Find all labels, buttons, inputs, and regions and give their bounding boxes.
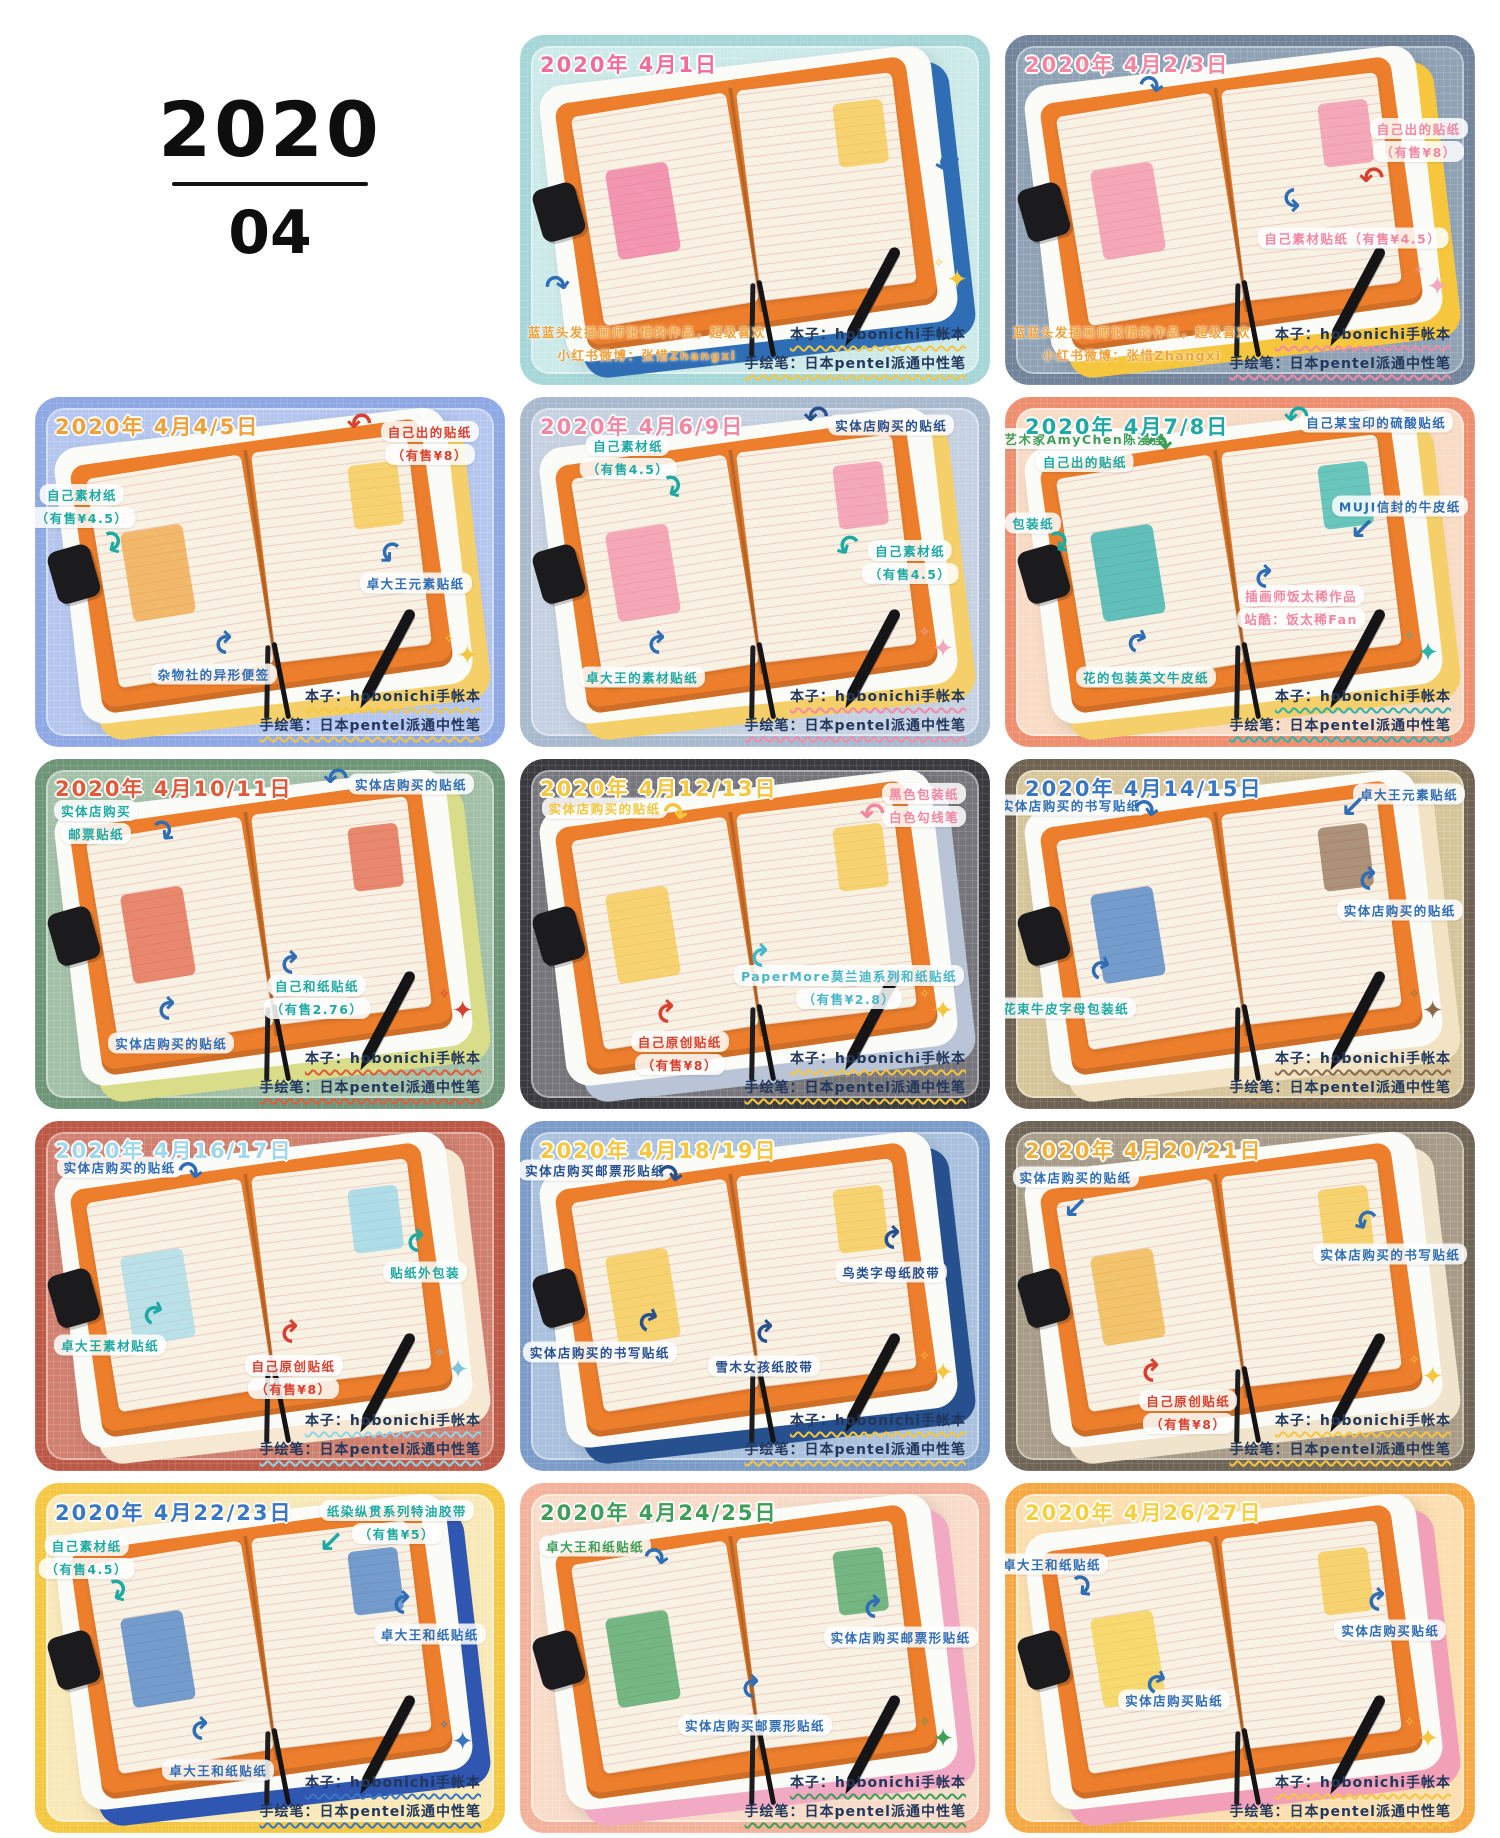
annotation-label: 花的包装英文牛皮纸 bbox=[1076, 665, 1216, 690]
annotation-label: 自己素材纸（有售¥4.5） bbox=[35, 482, 135, 530]
annotation-label: 卓大王素材贴纸 bbox=[54, 1333, 166, 1358]
card-date: 2020年 4月6/9日 bbox=[540, 411, 744, 441]
curly-arrow-icon: ↷ bbox=[749, 942, 779, 967]
sparkle-icon: ✦ bbox=[1417, 638, 1439, 668]
annotation-line: 贴纸外包装 bbox=[383, 1261, 467, 1282]
annotation-line: 卓大王的素材贴纸 bbox=[579, 667, 705, 688]
pen-credit: 手绘笔：日本pentel派通中性笔 bbox=[1230, 715, 1451, 735]
journal-card-12: 纸染纵贯系列特油胶带（有售¥5）↙自己素材纸（有售4.5）↷卓大王和纸贴纸↷卓大… bbox=[35, 1483, 505, 1833]
annotation-label: 卓大王和纸贴纸 bbox=[539, 1534, 651, 1559]
annotation-label: 卓大王元素贴纸 bbox=[1353, 782, 1465, 807]
annotation-line: （有售¥2.8） bbox=[796, 988, 903, 1009]
sparkle-icon: ✦ bbox=[946, 265, 968, 295]
card-footer: 本子：hobonichi手帐本 手绘笔：日本pentel派通中性笔 bbox=[1230, 315, 1451, 373]
card-date: 2020年 4月24/25日 bbox=[540, 1497, 778, 1527]
annotation-label: 实体店购买的贴纸 bbox=[1337, 897, 1463, 922]
sparkle-icon: ✦ bbox=[456, 641, 478, 671]
curly-arrow-icon: ↶ bbox=[1284, 403, 1309, 433]
annotation-line: 实体店购买的贴纸 bbox=[108, 1032, 234, 1053]
pen-credit: 手绘笔：日本pentel派通中性笔 bbox=[745, 353, 966, 373]
annotation-line: （有售¥8） bbox=[385, 444, 475, 465]
curly-arrow-icon: ↷ bbox=[660, 798, 690, 832]
curly-arrow-icon: ↷ bbox=[1253, 563, 1283, 588]
notebook-credit: 本子：hobonichi手帐本 bbox=[790, 1410, 966, 1430]
card-footer: 本子：hobonichi手帐本 手绘笔：日本pentel派通中性笔 bbox=[260, 677, 481, 735]
page: { "title": { "year": "2020", "month": "0… bbox=[0, 0, 1500, 1838]
annotation-label: 贴纸外包装 bbox=[383, 1259, 467, 1284]
annotation-line: 卓大王元素贴纸 bbox=[1353, 784, 1465, 805]
annotation-line: 雪木女孩纸胶带 bbox=[708, 1356, 820, 1377]
annotation-label: 卓大王元素贴纸 bbox=[360, 570, 472, 595]
pen-credit: 手绘笔：日本pentel派通中性笔 bbox=[1230, 353, 1451, 373]
annotation-line: 自己素材贴纸（有售¥4.5） bbox=[1257, 228, 1448, 249]
annotation-label: 自己某宝印的硫酸贴纸 bbox=[1299, 409, 1453, 434]
annotation-label: 实体店购买邮票形贴纸 bbox=[678, 1712, 832, 1737]
sparkle-icon: ✦ bbox=[932, 1724, 954, 1754]
annotation-line: （有售2.76） bbox=[264, 998, 371, 1019]
annotation-label: 自己出的贴纸（有售¥8） bbox=[381, 419, 479, 467]
notebook-credit: 本子：hobonichi手帐本 bbox=[790, 1772, 966, 1792]
journal-card-11: 实体店购买的贴纸↙实体店购买的书写贴纸↶自己原创贴纸（有售¥8）↷ 2020年 … bbox=[1005, 1121, 1475, 1471]
curly-arrow-icon: ↷ bbox=[543, 270, 573, 304]
sparkle-icon: ✦ bbox=[1426, 272, 1448, 302]
card-date: 2020年 4月20/21日 bbox=[1025, 1135, 1263, 1165]
sparkle-icon: ✦ bbox=[1422, 996, 1444, 1026]
curly-arrow-icon: ↶ bbox=[932, 147, 964, 182]
card-footer: 本子：hobonichi手帐本 手绘笔：日本pentel派通中性笔 bbox=[260, 1763, 481, 1821]
photo-caption: 蓝蓝头发插画师张惜的作品，超级喜欢小红书微博：张惜Zhangxi bbox=[521, 319, 773, 367]
curly-arrow-icon: ↶ bbox=[860, 800, 885, 830]
pen-credit: 手绘笔：日本pentel派通中性笔 bbox=[745, 1077, 966, 1097]
journal-card-5: 自己某宝印的硫酸贴纸↶艺术家AmyChen陈漫狸自己出的贴纸↷包装纸↷MUJI信… bbox=[1005, 397, 1475, 747]
card-footer: 本子：hobonichi手帐本 手绘笔：日本pentel派通中性笔 bbox=[745, 1763, 966, 1821]
annotation-line: （有售¥8） bbox=[635, 1054, 725, 1075]
annotation-line: 自己素材纸 bbox=[868, 540, 952, 561]
sparkle-icon: ✦ bbox=[452, 1727, 474, 1757]
annotation-label: 实体店购买的贴纸 bbox=[1012, 1165, 1138, 1190]
curly-arrow-icon: ↷ bbox=[1357, 865, 1387, 890]
annotation-line: 纸染纵贯系列特油胶带 bbox=[320, 1500, 474, 1521]
journal-card-2: 自己出的贴纸（有售¥8）↶自己素材贴纸（有售¥4.5）蓝蓝头发插画师张惜的作品，… bbox=[1005, 35, 1475, 385]
card-footer: 本子：hobonichi手帐本 手绘笔：日本pentel派通中性笔 bbox=[745, 677, 966, 735]
annotation-line: 自己出的贴纸 bbox=[1370, 118, 1468, 139]
pen-credit: 手绘笔：日本pentel派通中性笔 bbox=[1230, 1439, 1451, 1459]
curly-arrow-icon: ↶ bbox=[347, 410, 372, 440]
card-date: 2020年 4月7/8日 bbox=[1025, 411, 1229, 441]
annotation-label: 实体店购买的贴纸 bbox=[828, 413, 954, 438]
notebook-credit: 本子：hobonichi手帐本 bbox=[305, 1410, 481, 1430]
curly-arrow-icon: ↷ bbox=[646, 629, 676, 654]
journal-card-7: 实体店购买的贴纸↷黑色包装纸白色勾线笔↶PaperMore莫兰迪系列和纸贴纸（有… bbox=[520, 759, 990, 1109]
notebook-credit: 本子：hobonichi手帐本 bbox=[305, 686, 481, 706]
annotation-label: 杂物社的异形便签 bbox=[151, 661, 277, 686]
annotation-line: 实体店购买邮票形贴纸 bbox=[678, 1714, 832, 1735]
curly-arrow-icon: ↷ bbox=[740, 1673, 770, 1698]
card-date: 2020年 4月22/23日 bbox=[55, 1497, 293, 1527]
curly-arrow-icon: ↙ bbox=[1350, 515, 1375, 545]
curly-arrow-icon: ↷ bbox=[139, 1297, 176, 1331]
annotation-line: 蓝蓝头发插画师张惜的作品，超级喜欢 bbox=[521, 321, 773, 342]
curly-arrow-icon: ↷ bbox=[279, 949, 309, 974]
annotation-line: （有售4.5） bbox=[862, 563, 959, 584]
annotation-label: 卓大王和纸贴纸 bbox=[374, 1621, 486, 1646]
card-date: 2020年 4月1日 bbox=[540, 49, 718, 79]
annotation-line: 小红书微博：张惜Zhangxi bbox=[1035, 344, 1228, 365]
annotation-line: 自己出的贴纸 bbox=[1036, 451, 1134, 472]
card-date: 2020年 4月14/15日 bbox=[1025, 773, 1263, 803]
curly-arrow-icon: ↙ bbox=[1063, 1194, 1088, 1224]
notebook-credit: 本子：hobonichi手帐本 bbox=[1275, 1410, 1451, 1430]
annotation-line: 卓大王素材贴纸 bbox=[54, 1335, 166, 1356]
card-footer: 本子：hobonichi手帐本 手绘笔：日本pentel派通中性笔 bbox=[260, 1401, 481, 1459]
annotation-label: 雪木女孩纸胶带 bbox=[708, 1354, 820, 1379]
annotation-line: 卓大王和纸贴纸 bbox=[374, 1623, 486, 1644]
curly-arrow-icon: ↷ bbox=[633, 1304, 670, 1338]
annotation-line: 花束牛皮字母包装纸 bbox=[1005, 997, 1136, 1018]
annotation-label: 黑色包装纸白色勾线笔 bbox=[882, 781, 966, 829]
notebook-credit: 本子：hobonichi手帐本 bbox=[1275, 1048, 1451, 1068]
annotation-line: 自己某宝印的硫酸贴纸 bbox=[1299, 411, 1453, 432]
annotation-line: 实体店购买的书写贴纸 bbox=[1313, 1244, 1467, 1265]
annotation-line: 自己出的贴纸 bbox=[381, 421, 479, 442]
pen-credit: 手绘笔：日本pentel派通中性笔 bbox=[745, 1439, 966, 1459]
card-footer: 本子：hobonichi手帐本 手绘笔：日本pentel派通中性笔 bbox=[1230, 677, 1451, 735]
annotation-label: 自己原创贴纸（有售¥8） bbox=[631, 1029, 729, 1077]
annotation-label: 插画师饭太稀作品站酷：饭太稀Fan bbox=[1237, 583, 1365, 631]
annotation-line: 邮票贴纸 bbox=[61, 823, 131, 844]
pen-credit: 手绘笔：日本pentel派通中性笔 bbox=[260, 715, 481, 735]
annotation-label: 卓大王的素材贴纸 bbox=[579, 665, 705, 690]
curly-arrow-icon: ↷ bbox=[881, 1224, 911, 1249]
annotation-line: 实体店购买的贴纸 bbox=[1012, 1167, 1138, 1188]
annotation-line: 卓大王元素贴纸 bbox=[360, 572, 472, 593]
sparkle-icon: ✦ bbox=[1417, 1724, 1439, 1754]
notebook-credit: 本子：hobonichi手帐本 bbox=[790, 1048, 966, 1068]
pen-credit: 手绘笔：日本pentel派通中性笔 bbox=[1230, 1077, 1451, 1097]
card-date: 2020年 4月10/11日 bbox=[55, 773, 293, 803]
annotation-label: 自己素材纸（有售4.5） bbox=[862, 538, 959, 586]
curly-arrow-icon: ↷ bbox=[391, 1589, 421, 1614]
annotation-label: 实体店购买的书写贴纸 bbox=[523, 1340, 677, 1365]
notebook-credit: 本子：hobonichi手帐本 bbox=[1275, 1772, 1451, 1792]
annotation-line: （有售¥8） bbox=[1143, 1413, 1233, 1434]
annotation-line: 实体店购买的贴纸 bbox=[1337, 899, 1463, 920]
card-date: 2020年 4月12/13日 bbox=[540, 773, 778, 803]
annotation-line: 站酷：饭太稀Fan bbox=[1237, 608, 1365, 629]
annotation-line: （有售4.5） bbox=[580, 458, 677, 479]
journal-card-9: 实体店购买的贴纸↷贴纸外包装↷卓大王素材贴纸↷自己原创贴纸（有售¥8）↷ 202… bbox=[35, 1121, 505, 1471]
card-footer: 本子：hobonichi手帐本 手绘笔：日本pentel派通中性笔 bbox=[745, 1401, 966, 1459]
annotation-label: 自己原创贴纸（有售¥8） bbox=[244, 1353, 342, 1401]
title-year: 2020 bbox=[158, 90, 382, 170]
annotation-line: （有售¥5） bbox=[352, 1523, 442, 1544]
curly-arrow-icon: ↷ bbox=[91, 526, 130, 563]
annotation-label: 实体店购买的书写贴纸 bbox=[1313, 1242, 1467, 1267]
annotation-label: 自己素材贴纸（有售¥4.5） bbox=[1257, 226, 1448, 251]
annotation-line: （有售¥8） bbox=[1373, 141, 1463, 162]
curly-arrow-icon: ↷ bbox=[143, 813, 182, 852]
pen-credit: 手绘笔：日本pentel派通中性笔 bbox=[260, 1801, 481, 1821]
curly-arrow-icon: ↷ bbox=[156, 995, 186, 1020]
annotation-line: （有售¥8） bbox=[248, 1378, 338, 1399]
title-divider bbox=[172, 182, 368, 186]
card-footer: 本子：hobonichi手帐本 手绘笔：日本pentel派通中性笔 bbox=[1230, 1763, 1451, 1821]
annotation-label: 花束牛皮字母包装纸 bbox=[1005, 995, 1136, 1020]
card-date: 2020年 4月18/19日 bbox=[540, 1135, 778, 1165]
annotation-line: 自己原创贴纸 bbox=[631, 1031, 729, 1052]
curly-arrow-icon: ↷ bbox=[405, 1227, 435, 1252]
sparkle-icon: ✦ bbox=[932, 634, 954, 664]
journal-card-4: 实体店购买的贴纸↶自己素材纸（有售4.5）↷自己素材纸（有售4.5）↶卓大王的素… bbox=[520, 397, 990, 747]
annotation-label: 自己原创贴纸（有售¥8） bbox=[1139, 1388, 1237, 1436]
curly-arrow-icon: ↶ bbox=[1349, 1203, 1386, 1242]
sparkle-icon: ✦ bbox=[452, 996, 474, 1026]
annotation-line: 花的包装英文牛皮纸 bbox=[1076, 667, 1216, 688]
annotation-label: 实体店购买贴纸 bbox=[1334, 1618, 1446, 1643]
annotation-line: 自己素材纸 bbox=[45, 1535, 129, 1556]
curly-arrow-icon: ↷ bbox=[655, 998, 685, 1023]
annotation-line: 实体店购买邮票形贴纸 bbox=[824, 1627, 978, 1648]
journal-card-3: 自己出的贴纸（有售¥8）↶自己素材纸（有售¥4.5）↷卓大王元素贴纸↶杂物社的异… bbox=[35, 397, 505, 747]
sparkle-icon: ✦ bbox=[1422, 1362, 1444, 1392]
annotation-line: 自己和纸贴纸 bbox=[268, 975, 366, 996]
notebook-credit: 本子：hobonichi手帐本 bbox=[305, 1048, 481, 1068]
pen-credit: 手绘笔：日本pentel派通中性笔 bbox=[745, 1801, 966, 1821]
curly-arrow-icon: ↶ bbox=[1359, 164, 1384, 194]
annotation-line: 小红书微博：张惜Zhangxi bbox=[550, 344, 743, 365]
card-date: 2020年 4月26/27日 bbox=[1025, 1497, 1263, 1527]
annotation-line: 自己素材纸 bbox=[40, 484, 124, 505]
cards-grid: 蓝蓝头发插画师张惜的作品，超级喜欢小红书微博：张惜Zhangxi↶↷ 2020年… bbox=[0, 0, 1500, 1838]
card-date: 2020年 4月2/3日 bbox=[1025, 49, 1229, 79]
annotation-line: 蓝蓝头发插画师张惜的作品，超级喜欢 bbox=[1006, 321, 1258, 342]
curly-arrow-icon: ↷ bbox=[641, 1543, 671, 1577]
annotation-label: 自己和纸贴纸（有售2.76） bbox=[264, 973, 371, 1021]
card-footer: 本子：hobonichi手帐本 手绘笔：日本pentel派通中性笔 bbox=[260, 1039, 481, 1097]
curly-arrow-icon: ↷ bbox=[279, 1318, 309, 1343]
card-footer: 本子：hobonichi手帐本 手绘笔：日本pentel派通中性笔 bbox=[745, 1039, 966, 1097]
annotation-line: 白色勾线笔 bbox=[882, 806, 966, 827]
curly-arrow-icon: ↶ bbox=[323, 765, 348, 795]
pen-credit: 手绘笔：日本pentel派通中性笔 bbox=[260, 1439, 481, 1459]
curly-arrow-icon: ↙ bbox=[1340, 793, 1365, 823]
curly-arrow-icon: ↶ bbox=[804, 403, 829, 433]
card-footer: 本子：hobonichi手帐本 手绘笔：日本pentel派通中性笔 bbox=[1230, 1039, 1451, 1097]
annotation-line: （有售¥4.5） bbox=[35, 507, 135, 528]
journal-card-1: 蓝蓝头发插画师张惜的作品，超级喜欢小红书微博：张惜Zhangxi↶↷ 2020年… bbox=[520, 35, 990, 385]
curly-arrow-icon: ↷ bbox=[213, 629, 243, 654]
card-date: 2020年 4月4/5日 bbox=[55, 411, 259, 441]
journal-card-10: 实体店购买邮票形贴纸↷鸟类字母纸胶带↷实体店购买的书写贴纸↷雪木女孩纸胶带↷ 2… bbox=[520, 1121, 990, 1471]
title-month: 04 bbox=[158, 198, 382, 268]
annotation-line: 自己原创贴纸 bbox=[1139, 1390, 1237, 1411]
annotation-label: 自己出的贴纸（有售¥8） bbox=[1370, 116, 1468, 164]
curly-arrow-icon: ↷ bbox=[1140, 1357, 1170, 1382]
annotation-line: 黑色包装纸 bbox=[882, 783, 966, 804]
curly-arrow-icon: ↶ bbox=[373, 535, 412, 574]
notebook-credit: 本子：hobonichi手帐本 bbox=[1275, 324, 1451, 344]
curly-arrow-icon: ↷ bbox=[1085, 952, 1122, 986]
annotation-line: 卓大王和纸贴纸 bbox=[162, 1760, 274, 1781]
journal-card-13: 卓大王和纸贴纸↷实体店购买邮票形贴纸↷实体店购买邮票形贴纸↷ 2020年 4月2… bbox=[520, 1483, 990, 1833]
curly-arrow-icon: ↷ bbox=[1123, 625, 1160, 659]
notebook-credit: 本子：hobonichi手帐本 bbox=[790, 324, 966, 344]
notebook-credit: 本子：hobonichi手帐本 bbox=[305, 1772, 481, 1792]
annotation-label: 实体店购买的贴纸 bbox=[108, 1030, 234, 1055]
annotation-line: 卓大王和纸贴纸 bbox=[1005, 1553, 1108, 1574]
annotation-line: 实体店购买 bbox=[54, 800, 138, 821]
annotation-label: 卓大王和纸贴纸 bbox=[1005, 1551, 1108, 1576]
annotation-line: 实体店购买的书写贴纸 bbox=[523, 1342, 677, 1363]
notebook-credit: 本子：hobonichi手帐本 bbox=[1275, 686, 1451, 706]
journal-card-8: 实体店购买的书写贴纸↷卓大王元素贴纸↙实体店购买的贴纸↷花束牛皮字母包装纸↷ 2… bbox=[1005, 759, 1475, 1109]
notebook-credit: 本子：hobonichi手帐本 bbox=[790, 686, 966, 706]
annotation-line: 实体店购买的贴纸 bbox=[828, 415, 954, 436]
annotation-line: 实体店购买贴纸 bbox=[1334, 1620, 1446, 1641]
curly-arrow-icon: ↷ bbox=[1366, 1586, 1396, 1611]
curly-arrow-icon: ↙ bbox=[319, 1528, 344, 1558]
annotation-line: 杂物社的异形便签 bbox=[151, 663, 277, 684]
pen-credit: 手绘笔：日本pentel派通中性笔 bbox=[1230, 1801, 1451, 1821]
journal-card-6: 实体店购买的贴纸↶实体店购买邮票贴纸↷自己和纸贴纸（有售2.76）↷实体店购买的… bbox=[35, 759, 505, 1109]
pen-credit: 手绘笔：日本pentel派通中性笔 bbox=[260, 1077, 481, 1097]
page-title: 2020 04 bbox=[158, 90, 382, 268]
curly-arrow-icon: ↷ bbox=[189, 1715, 219, 1740]
journal-card-14: 卓大王和纸贴纸↷实体店购买贴纸↷实体店购买贴纸↷ 2020年 4月26/27日 … bbox=[1005, 1483, 1475, 1833]
curly-arrow-icon: ↶ bbox=[1281, 187, 1311, 212]
curly-arrow-icon: ↷ bbox=[862, 1593, 892, 1618]
annotation-label: 实体店购买邮票形贴纸 bbox=[824, 1625, 978, 1650]
annotation-line: 卓大王和纸贴纸 bbox=[539, 1536, 651, 1557]
annotation-label: 实体店购买邮票贴纸 bbox=[54, 798, 138, 846]
annotation-line: 自己原创贴纸 bbox=[244, 1355, 342, 1376]
sparkle-icon: ✦ bbox=[447, 1355, 469, 1385]
annotation-line: PaperMore莫兰迪系列和纸贴纸 bbox=[734, 965, 964, 986]
annotation-line: 实体店购买的贴纸 bbox=[348, 773, 474, 794]
curly-arrow-icon: ↷ bbox=[655, 1160, 685, 1194]
photo-caption: 蓝蓝头发插画师张惜的作品，超级喜欢小红书微博：张惜Zhangxi bbox=[1006, 319, 1258, 367]
pen-credit: 手绘笔：日本pentel派通中性笔 bbox=[745, 715, 966, 735]
annotation-label: 卓大王和纸贴纸 bbox=[162, 1758, 274, 1783]
card-date: 2020年 4月16/17日 bbox=[55, 1135, 293, 1165]
card-footer: 本子：hobonichi手帐本 手绘笔：日本pentel派通中性笔 bbox=[1230, 1401, 1451, 1459]
sparkle-icon: ✦ bbox=[932, 996, 954, 1026]
card-footer: 本子：hobonichi手帐本 手绘笔：日本pentel派通中性笔 bbox=[745, 315, 966, 373]
annotation-label: 鸟类字母纸胶带 bbox=[835, 1259, 947, 1284]
annotation-line: 鸟类字母纸胶带 bbox=[835, 1261, 947, 1282]
curly-arrow-icon: ↷ bbox=[754, 1318, 784, 1343]
annotation-label: 实体店购买的贴纸 bbox=[348, 771, 474, 796]
sparkle-icon: ✦ bbox=[932, 1358, 954, 1388]
